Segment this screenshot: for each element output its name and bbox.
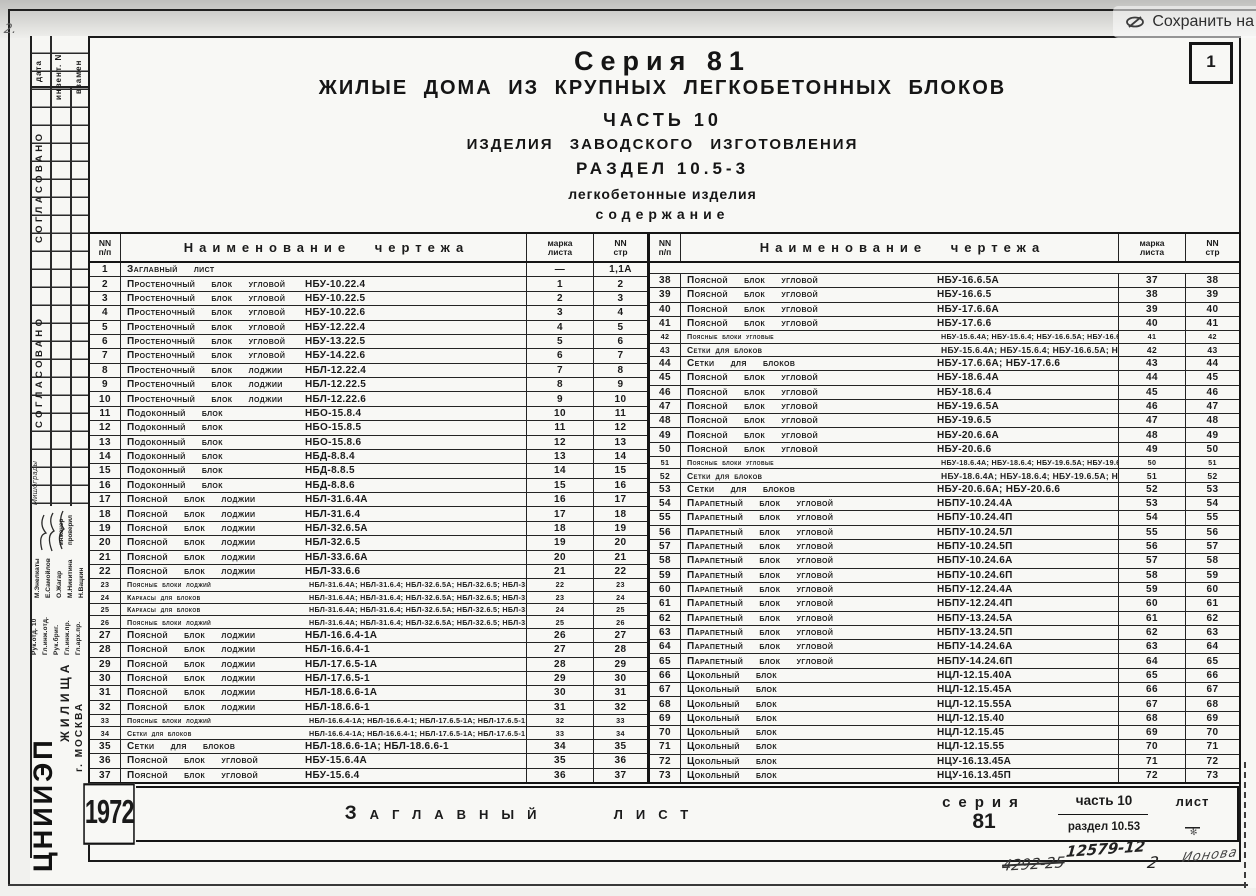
sidebar-inventory-label: инвент. N xyxy=(54,54,63,100)
sheet-mark: 27 xyxy=(527,643,594,656)
drawing-name: Поясной блок лоджииНБЛ-32.6.5А xyxy=(121,522,527,535)
table-row: 4Простеночный блок угловойНБУ-10.22.634 xyxy=(90,306,647,320)
table-row: 43Сетки для блоковНБУ-15.6.4А; НБУ-15.6.… xyxy=(650,344,1239,357)
drawing-name: Парапетный блок угловойНБПУ-10.24.5Л xyxy=(681,526,1119,539)
sheet-label: лист xyxy=(1148,788,1237,814)
page-ref: 31 xyxy=(594,686,647,699)
section-title: РАЗДЕЛ 10.5-3 xyxy=(90,159,1235,179)
page-ref: 12 xyxy=(594,421,647,434)
table-row: 57Парапетный блок угловойНБПУ-10.24.5П56… xyxy=(650,540,1239,554)
row-number: 26 xyxy=(90,616,121,627)
table-row: 28Поясной блок лоджииНБЛ-16.6.4-12728 xyxy=(90,643,647,657)
table-row: 37Поясной блок угловойНБУ-15.6.43637 xyxy=(90,769,647,782)
sheet-mark: 9 xyxy=(527,392,594,405)
stamp-role: Рук.бриг. xyxy=(53,625,60,655)
right-dashed-edge xyxy=(1244,762,1246,888)
row-number: 63 xyxy=(650,626,681,639)
page-ref: 32 xyxy=(594,701,647,714)
table-row: 61Парапетный блок угловойНБПУ-12.24.4П60… xyxy=(650,597,1239,611)
sheet-mark: 18 xyxy=(527,522,594,535)
page-ref: 65 xyxy=(1186,654,1239,667)
drawing-name: Цокольный блокНЦУ-16.13.45А xyxy=(681,755,1119,768)
page-ref: 66 xyxy=(1186,669,1239,682)
drawing-name: Сетки для блоковНБУ-17.6.6А; НБУ-17.6.6 xyxy=(681,357,1119,370)
sheet-mark: 15 xyxy=(527,479,594,492)
page-ref: 35 xyxy=(594,740,647,753)
stamp-role: Гл.инж.пр. xyxy=(64,620,71,655)
sidebar-divider xyxy=(70,86,72,506)
page-ref: 37 xyxy=(594,769,647,782)
table-row: 66Цокольный блокНЦЛ-12.15.40А6566 xyxy=(650,669,1239,683)
sheet-mark: 12 xyxy=(527,436,594,449)
page-number-box: 1 xyxy=(1189,42,1233,84)
drawing-name: Каркасы для блоковНБЛ-31.6.4А; НБЛ-31.6.… xyxy=(121,604,527,615)
page-ref: 9 xyxy=(594,378,647,391)
page-ref: 33 xyxy=(594,715,647,726)
row-number: 38 xyxy=(650,274,681,287)
table-row: 68Цокольный блокНЦЛ-12.15.55А6768 xyxy=(650,697,1239,711)
series-value: 81 xyxy=(972,811,995,833)
table-header: NNп/п Наименование чертежа маркалиста NN… xyxy=(90,234,647,263)
outer-border-top xyxy=(8,9,1256,11)
drawing-name: Простеночный блок угловойНБУ-13.22.5 xyxy=(121,335,527,348)
table-row: 9Простеночный блок лоджииНБЛ-12.22.589 xyxy=(90,378,647,392)
part-title: ЧАСТЬ 10 xyxy=(90,110,1235,131)
sheet-mark: 3 xyxy=(527,306,594,319)
page-ref: 62 xyxy=(1186,612,1239,625)
sheet-mark: 26 xyxy=(527,629,594,642)
title-block-series: серия 81 xyxy=(908,786,1062,842)
page-ref: 39 xyxy=(1186,288,1239,301)
sheet-mark: 23 xyxy=(527,592,594,603)
drawing-name: Подоконный блокНБД-8.8.5 xyxy=(121,464,527,477)
page-ref: 29 xyxy=(594,658,647,671)
row-number: 18 xyxy=(90,507,121,520)
sheet-mark: 66 xyxy=(1119,683,1186,696)
drawing-name: Цокольный блокНЦЛ-12.15.45 xyxy=(681,726,1119,739)
table-row: 42Поясные блоки угловыеНБУ-15.6.4А; НБУ-… xyxy=(650,331,1239,343)
row-number: 43 xyxy=(650,344,681,356)
table-row: 29Поясной блок лоджииНБЛ-17.6.5-1А2829 xyxy=(90,658,647,672)
drawing-name: Простеночный блок угловойНБУ-10.22.6 xyxy=(121,306,527,319)
row-number: 66 xyxy=(650,669,681,682)
drawing-name: Подоконный блокНБД-8.8.4 xyxy=(121,450,527,463)
table-row: 65Парапетный блок угловойНБПУ-14.24.6П64… xyxy=(650,654,1239,668)
sheet-mark: 42 xyxy=(1119,344,1186,356)
page-ref: 40 xyxy=(1186,303,1239,316)
page-ref: 1,1А xyxy=(594,263,647,276)
page-ref: 53 xyxy=(1186,483,1239,496)
stamp-name: О.Жагар xyxy=(56,571,63,598)
page-ref: 25 xyxy=(594,604,647,615)
drawing-name: Поясные блоки угловыеНБУ-15.6.4А; НБУ-15… xyxy=(681,331,1119,342)
sheet-mark: 48 xyxy=(1119,428,1186,441)
table-row: 70Цокольный блокНЦЛ-12.15.456970 xyxy=(650,726,1239,740)
table-row: 18Поясной блок лоджииНБЛ-31.6.41718 xyxy=(90,507,647,521)
row-number: 3 xyxy=(90,292,121,305)
page-ref: 20 xyxy=(594,536,647,549)
page-ref: 8 xyxy=(594,364,647,377)
pencil-corner-mark: 2. xyxy=(3,22,18,37)
sheet-mark: 10 xyxy=(527,407,594,420)
drawing-name: Цокольный блокНЦЛ-12.15.40 xyxy=(681,712,1119,725)
table-row: 58Парапетный блок угловойНБПУ-10.24.6А57… xyxy=(650,554,1239,568)
scan-shading xyxy=(0,0,1256,38)
drawing-name: Поясные блоки угловыеНБУ-18.6.4А; НБУ-18… xyxy=(681,457,1119,468)
drawing-name: Парапетный блок угловойНБПУ-14.24.6А xyxy=(681,640,1119,653)
drawing-name: Парапетный блок угловойНБПУ-10.24.6П xyxy=(681,569,1119,582)
yandex-disk-icon xyxy=(1125,12,1145,32)
page-ref: 16 xyxy=(594,479,647,492)
page-ref: 69 xyxy=(1186,712,1239,725)
series-label: серия xyxy=(942,795,1026,811)
scanned-drawing-sheet: 2. Серия 81 ЖИЛЫЕ ДОМА ИЗ КРУПНЫХ ЛЕГКОБ… xyxy=(0,0,1256,896)
row-number: 5 xyxy=(90,321,121,334)
page-ref: 50 xyxy=(1186,443,1239,456)
drawing-name: Поясной блок лоджииНБЛ-17.6.5-1А xyxy=(121,658,527,671)
sheet-mark: 39 xyxy=(1119,303,1186,316)
sheet-mark: 28 xyxy=(527,658,594,671)
drawing-name: Простеночный блок угловойНБУ-14.22.6 xyxy=(121,349,527,362)
outer-border-bottom xyxy=(8,884,1248,886)
table-row: 13Подоконный блокНБО-15.8.61213 xyxy=(90,436,647,450)
page-ref: 18 xyxy=(594,507,647,520)
row-number: 67 xyxy=(650,683,681,696)
drawing-name: Парапетный блок угловойНБПУ-12.24.4П xyxy=(681,597,1119,610)
sidebar-replaces-label: взамен xyxy=(74,60,83,94)
stamp-name: Е.Самойлов xyxy=(45,558,52,598)
page-ref: 36 xyxy=(594,754,647,767)
drawing-name: Поясной блок угловойНБУ-18.6.4 xyxy=(681,386,1119,399)
page-ref: 44 xyxy=(1186,357,1239,370)
drawing-name: Парапетный блок угловойНБПУ-14.24.6П xyxy=(681,654,1119,667)
row-number: 21 xyxy=(90,551,121,564)
page-ref: 68 xyxy=(1186,697,1239,710)
col-number-header: NNп/п xyxy=(650,234,681,261)
table-row: 30Поясной блок лоджииНБЛ-17.6.5-12930 xyxy=(90,672,647,686)
drawing-name: Поясной блок угловойНБУ-15.6.4 xyxy=(121,769,527,782)
sheet-mark: 6 xyxy=(527,349,594,362)
outer-border-left xyxy=(8,9,10,886)
row-number: 41 xyxy=(650,317,681,330)
drawing-name: Подоконный блокНБД-8.8.6 xyxy=(121,479,527,492)
sheet-mark: 20 xyxy=(527,551,594,564)
row-number: 47 xyxy=(650,400,681,413)
page-ref: 28 xyxy=(594,643,647,656)
row-number: 9 xyxy=(90,378,121,391)
col-page-header: NNстр xyxy=(1186,234,1239,261)
table-row: 24Каркасы для блоковНБЛ-31.6.4А; НБЛ-31.… xyxy=(90,592,647,604)
page-ref: 48 xyxy=(1186,414,1239,427)
row-number: 50 xyxy=(650,443,681,456)
drawing-name: Поясной блок лоджииНБЛ-18.6.6-1А xyxy=(121,686,527,699)
row-number: 60 xyxy=(650,583,681,596)
page-ref: 52 xyxy=(1186,469,1239,481)
table-row: 20Поясной блок лоджииНБЛ-32.6.51920 xyxy=(90,536,647,550)
table-row: 33Поясные блоки лоджийНБЛ-16.6.4-1А; НБЛ… xyxy=(90,715,647,727)
drawing-name: Поясной блок угловойНБУ-19.6.5 xyxy=(681,414,1119,427)
drawing-name: Сетки для блоковНБУ-15.6.4А; НБУ-15.6.4;… xyxy=(681,344,1119,356)
drawing-name: Цокольный блокНЦЛ-12.15.45А xyxy=(681,683,1119,696)
row-number: 46 xyxy=(650,386,681,399)
page-ref: 59 xyxy=(1186,569,1239,582)
table-row: 36Поясной блок угловойНБУ-15.6.4А3536 xyxy=(90,754,647,768)
page-ref: 34 xyxy=(594,727,647,738)
row-number: 44 xyxy=(650,357,681,370)
ink-smudge: ✻ xyxy=(1189,828,1198,839)
row-number: 2 xyxy=(90,277,121,290)
page-ref: 7 xyxy=(594,349,647,362)
row-number: 57 xyxy=(650,540,681,553)
page-ref: 4 xyxy=(594,306,647,319)
row-number: 31 xyxy=(90,686,121,699)
row-number: 12 xyxy=(90,421,121,434)
table-row: 50Поясной блок угловойНБУ-20.6.64950 xyxy=(650,443,1239,457)
page-ref: 24 xyxy=(594,592,647,603)
table-row: 31Поясной блок лоджииНБЛ-18.6.6-1А3031 xyxy=(90,686,647,700)
stamp-name: М.Энелкаты xyxy=(34,558,41,598)
table-row: 71Цокольный блокНЦЛ-12.15.557071 xyxy=(650,740,1239,754)
sheet-mark: 1 xyxy=(527,277,594,290)
drawing-name: Цокольный блокНЦЛ-12.15.55 xyxy=(681,740,1119,753)
table-row: 69Цокольный блокНЦЛ-12.15.406869 xyxy=(650,712,1239,726)
row-number: 40 xyxy=(650,303,681,316)
page-ref: 54 xyxy=(1186,497,1239,510)
table-row: 41Поясной блок угловойНБУ-17.6.64041 xyxy=(650,317,1239,331)
row-number: 8 xyxy=(90,364,121,377)
drawing-name: Поясной блок лоджииНБЛ-18.6.6-1 xyxy=(121,701,527,714)
page-ref: 22 xyxy=(594,565,647,578)
drawing-name: Поясной блок угловойНБУ-16.6.5 xyxy=(681,288,1119,301)
page-ref: 61 xyxy=(1186,597,1239,610)
handwritten-crossed-number: 4292-25 xyxy=(1001,853,1066,874)
row-number: 35 xyxy=(90,740,121,753)
row-number: 42 xyxy=(650,331,681,342)
drawing-name: Поясные блоки лоджийНБЛ-16.6.4-1А; НБЛ-1… xyxy=(121,715,527,726)
page-ref: 58 xyxy=(1186,554,1239,567)
table-row: 51Поясные блоки угловыеНБУ-18.6.4А; НБУ-… xyxy=(650,457,1239,469)
year-box: 1972 xyxy=(83,783,134,845)
table-row: 10Простеночный блок лоджииНБЛ-12.22.6910 xyxy=(90,392,647,406)
sheet-mark: 29 xyxy=(527,672,594,685)
sheet-mark: 60 xyxy=(1119,597,1186,610)
page-ref: 60 xyxy=(1186,583,1239,596)
col-name-header: Наименование чертежа xyxy=(681,234,1119,261)
sheet-mark: 22 xyxy=(527,579,594,590)
row-number: 49 xyxy=(650,428,681,441)
drawing-name: Поясной блок угловойНБУ-16.6.5А xyxy=(681,274,1119,287)
drawing-name: Заглавный лист xyxy=(121,263,527,276)
page-ref: 73 xyxy=(1186,769,1239,782)
sheet-mark: 64 xyxy=(1119,654,1186,667)
subtitle-factory: ИЗДЕЛИЯ ЗАВОДСКОГО ИЗГОТОВЛЕНИЯ xyxy=(90,136,1235,153)
table-row: 55Парапетный блок угловойНБПУ-10.24.4П54… xyxy=(650,511,1239,525)
sheet-mark: 40 xyxy=(1119,317,1186,330)
drawing-name: Поясной блок угловойНБУ-17.6.6 xyxy=(681,317,1119,330)
agreed-stamp: СОГЛАСОВАНО xyxy=(34,316,45,428)
sheet-mark: 68 xyxy=(1119,712,1186,725)
sidebar-grid-cells xyxy=(31,36,88,506)
subtitle-products: легкобетонные изделия xyxy=(90,186,1235,202)
drawing-name: Поясной блок угловойНБУ-20.6.6 xyxy=(681,443,1119,456)
drawing-name: Поясной блок угловойНБУ-20.6.6А xyxy=(681,428,1119,441)
table-row: 59Парапетный блок угловойНБПУ-10.24.6П58… xyxy=(650,569,1239,583)
table-row: 8Простеночный блок лоджииНБЛ-12.22.478 xyxy=(90,364,647,378)
sheet-mark: 17 xyxy=(527,507,594,520)
sheet-mark: 62 xyxy=(1119,626,1186,639)
save-to-disk-button[interactable]: Сохранить на xyxy=(1113,6,1256,38)
sheet-mark: 52 xyxy=(1119,483,1186,496)
row-number: 39 xyxy=(650,288,681,301)
table-row: 38Поясной блок угловойНБУ-16.6.5А3738 xyxy=(650,274,1239,288)
sheet-mark: 14 xyxy=(527,464,594,477)
empty-row xyxy=(650,263,1239,274)
sheet-mark: 38 xyxy=(1119,288,1186,301)
sheet-mark: 16 xyxy=(527,493,594,506)
sidebar-date-label: дата xyxy=(34,60,43,82)
page-ref: 26 xyxy=(594,616,647,627)
page-ref: 63 xyxy=(1186,626,1239,639)
row-number: 7 xyxy=(90,349,121,362)
row-number: 11 xyxy=(90,407,121,420)
sheet-mark: 21 xyxy=(527,565,594,578)
table-row: 73Цокольный блокНЦУ-16.13.45П7273 xyxy=(650,769,1239,782)
row-number: 19 xyxy=(90,522,121,535)
row-number: 59 xyxy=(650,569,681,582)
drawing-name: Поясной блок угловойНБУ-18.6.4А xyxy=(681,371,1119,384)
drawing-name: Подоконный блокНБО-15.8.4 xyxy=(121,407,527,420)
part-label: часть 10 xyxy=(1058,788,1150,815)
sheet-mark: 51 xyxy=(1119,469,1186,481)
row-number: 68 xyxy=(650,697,681,710)
table-row: 40Поясной блок угловойНБУ-17.6.6А3940 xyxy=(650,303,1239,317)
stamp-role: Гл.инж.отд. xyxy=(42,617,49,655)
drawing-name: Парапетный блок угловойНБПУ-10.24.5П xyxy=(681,540,1119,553)
sheet-mark: 65 xyxy=(1119,669,1186,682)
page-ref: 70 xyxy=(1186,726,1239,739)
table-row: 72Цокольный блокНЦУ-16.13.45А7172 xyxy=(650,755,1239,769)
page-ref: 14 xyxy=(594,450,647,463)
sheet-mark: 72 xyxy=(1119,769,1186,782)
drawing-name: Цокольный блокНЦУ-16.13.45П xyxy=(681,769,1119,782)
sheet-mark: 2 xyxy=(527,292,594,305)
sheet-mark: 54 xyxy=(1119,511,1186,524)
sheet-mark: 13 xyxy=(527,450,594,463)
sheet-mark: 33 xyxy=(527,727,594,738)
drawing-name: Поясной блок угловойНБУ-17.6.6А xyxy=(681,303,1119,316)
row-number: 64 xyxy=(650,640,681,653)
stamp-name: М.Никитина xyxy=(67,560,74,598)
drawing-name: Простеночный блок лоджииНБЛ-12.22.4 xyxy=(121,364,527,377)
row-number: 45 xyxy=(650,371,681,384)
table-row: 16Подоконный блокНБД-8.8.61516 xyxy=(90,479,647,493)
title-block-part: часть 10 раздел 10.53 xyxy=(1058,786,1152,842)
row-number: 13 xyxy=(90,436,121,449)
page-ref: 46 xyxy=(1186,386,1239,399)
row-number: 16 xyxy=(90,479,121,492)
col-number-header: NNп/п xyxy=(90,234,121,261)
sheet-mark: 49 xyxy=(1119,443,1186,456)
row-number: 61 xyxy=(650,597,681,610)
row-number: 72 xyxy=(650,755,681,768)
page-ref: 13 xyxy=(594,436,647,449)
drawing-name: Простеночный блок лоджииНБЛ-12.22.5 xyxy=(121,378,527,391)
drawing-name: Сетки для блоковНБУ-18.6.4А; НБУ-18.6.4;… xyxy=(681,469,1119,481)
sheet-mark: 45 xyxy=(1119,386,1186,399)
table-row: 12Подоконный блокНБО-15.8.51112 xyxy=(90,421,647,435)
col-name-header: Наименование чертежа xyxy=(121,234,527,261)
table-row: 3Простеночный блок угловойНБУ-10.22.523 xyxy=(90,292,647,306)
page-ref: 56 xyxy=(1186,526,1239,539)
drawing-name: Поясной блок лоджииНБЛ-16.6.4-1 xyxy=(121,643,527,656)
drawing-name: Простеночный блок угловойНБУ-12.22.4 xyxy=(121,321,527,334)
row-number: 1 xyxy=(90,263,121,276)
page-ref: 10 xyxy=(594,392,647,405)
table-row: 2Простеночный блок угловойНБУ-10.22.412 xyxy=(90,277,647,291)
row-number: 15 xyxy=(90,464,121,477)
sheet-mark: 41 xyxy=(1119,331,1186,342)
drawing-name: Простеночный блок угловойНБУ-10.22.5 xyxy=(121,292,527,305)
sheet-mark: 5 xyxy=(527,335,594,348)
sheet-mark: 46 xyxy=(1119,400,1186,413)
sheet-mark: — xyxy=(527,263,594,276)
row-number: 62 xyxy=(650,612,681,625)
page-ref: 3 xyxy=(594,292,647,305)
contents-table-right: NNп/п Наименование чертежа маркалиста NN… xyxy=(648,232,1241,784)
sheet-mark: 56 xyxy=(1119,540,1186,553)
row-number: 73 xyxy=(650,769,681,782)
sheet-mark: 69 xyxy=(1119,726,1186,739)
page-ref: 51 xyxy=(1186,457,1239,468)
series-title: Серия 81 xyxy=(90,46,1235,77)
row-number: 51 xyxy=(650,457,681,468)
drawing-name: Подоконный блокНБО-15.8.5 xyxy=(121,421,527,434)
table-row: 54Парапетный блок угловойНБПУ-10.24.4А53… xyxy=(650,497,1239,511)
table-row: 35Сетки для блоковНБЛ-18.6.6-1А; НБЛ-18.… xyxy=(90,740,647,754)
table-row: 67Цокольный блокНЦЛ-12.15.45А6667 xyxy=(650,683,1239,697)
row-number: 29 xyxy=(90,658,121,671)
page-ref: 15 xyxy=(594,464,647,477)
row-number: 58 xyxy=(650,554,681,567)
drawing-name: Поясной блок угловойНБУ-19.6.5А xyxy=(681,400,1119,413)
sheet-mark: 19 xyxy=(527,536,594,549)
page-ref: 67 xyxy=(1186,683,1239,696)
sheet-mark: 59 xyxy=(1119,583,1186,596)
drawing-name: Поясные блоки лоджийНБЛ-31.6.4А; НБЛ-31.… xyxy=(121,579,527,590)
row-number: 36 xyxy=(90,754,121,767)
sheet-mark: 35 xyxy=(527,754,594,767)
table-row: 6Простеночный блок угловойНБУ-13.22.556 xyxy=(90,335,647,349)
sheet-mark: 44 xyxy=(1119,371,1186,384)
table-row: 52Сетки для блоковНБУ-18.6.4А; НБУ-18.6.… xyxy=(650,469,1239,482)
drawing-name: Сетки для блоковНБУ-20.6.6А; НБУ-20.6.6 xyxy=(681,483,1119,496)
page-ref: 17 xyxy=(594,493,647,506)
sheet-mark: 11 xyxy=(527,421,594,434)
row-number: 23 xyxy=(90,579,121,590)
drawing-name: Поясной блок лоджииНБЛ-31.6.4А xyxy=(121,493,527,506)
table-row: 34Сетки для блоковНБЛ-16.6.4-1А; НБЛ-16.… xyxy=(90,727,647,739)
table-row: 53Сетки для блоковНБУ-20.6.6А; НБУ-20.6.… xyxy=(650,483,1239,497)
page-ref: 72 xyxy=(1186,755,1239,768)
row-number: 71 xyxy=(650,740,681,753)
row-number: 70 xyxy=(650,726,681,739)
row-number: 32 xyxy=(90,701,121,714)
section-label: раздел 10.53 xyxy=(1058,815,1150,841)
table-row: 17Поясной блок лоджииНБЛ-31.6.4А1617 xyxy=(90,493,647,507)
drawing-name: Поясной блок лоджииНБЛ-31.6.4 xyxy=(121,507,527,520)
row-number: 37 xyxy=(90,769,121,782)
drawing-name: Цокольный блокНЦЛ-12.15.55А xyxy=(681,697,1119,710)
